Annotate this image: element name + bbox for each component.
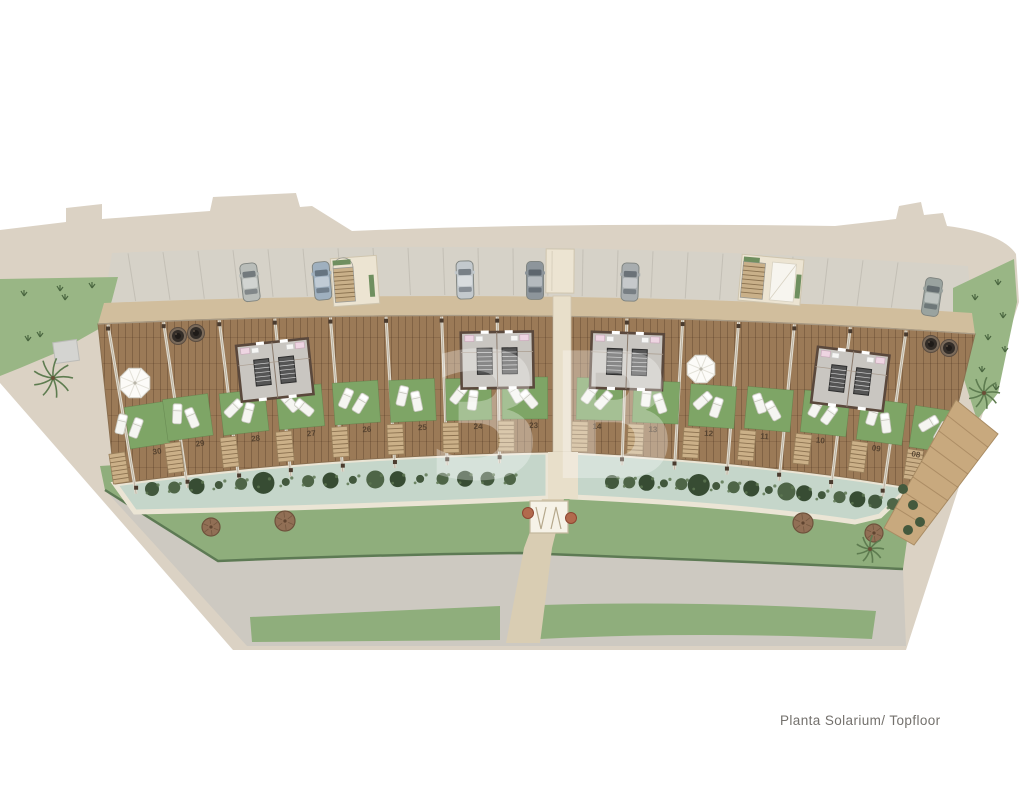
bush-icon [908, 500, 918, 510]
hedge-icon [818, 491, 826, 499]
stairs-icon [848, 441, 868, 473]
stairs-icon [737, 430, 756, 461]
hedge-leaf [335, 475, 338, 478]
fence-post [106, 327, 110, 331]
unit-number-label: 28 [251, 433, 261, 443]
hedge-icon [849, 491, 865, 507]
hedge-leaf [357, 474, 360, 477]
hedge-leaf [313, 476, 316, 479]
hedge-leaf [369, 482, 372, 485]
unit-number-label: 29 [195, 438, 206, 448]
hedge-leaf [710, 489, 713, 492]
hedge-icon [323, 473, 339, 489]
hedge-leaf [212, 488, 215, 491]
watermark-text: 3B [425, 317, 680, 520]
hedge-leaf [880, 496, 883, 499]
hedge-leaf [756, 483, 759, 486]
hedge-leaf [235, 486, 238, 489]
hedge-leaf [815, 498, 818, 501]
car-icon [454, 261, 475, 300]
hedge-icon [743, 481, 759, 497]
fence-post [328, 320, 332, 324]
hedge-leaf [844, 492, 847, 495]
hedge-leaf [190, 489, 193, 492]
plan-svg: 302928272625242314131211100908 3B [0, 0, 1024, 800]
hedge-leaf [738, 482, 741, 485]
hedge-leaf [391, 482, 394, 485]
hedge-leaf [780, 494, 783, 497]
stairs-icon [682, 427, 700, 458]
hedge-leaf [809, 488, 812, 491]
hedge-leaf [773, 484, 776, 487]
umbrella-icon [120, 368, 150, 398]
site-plan-page: 302928272625242314131211100908 3B Planta… [0, 0, 1024, 800]
fence-post [162, 324, 166, 328]
tree-icon [275, 511, 295, 531]
jacuzzi-icon [188, 325, 205, 342]
unit-number-label: 27 [306, 429, 316, 439]
stairs-icon [331, 426, 349, 457]
hedge-leaf [290, 476, 293, 479]
gravel-pad [53, 339, 80, 363]
hedge-leaf [745, 491, 748, 494]
hedge-leaf [721, 480, 724, 483]
unit-number-label: 10 [815, 436, 825, 446]
fence-post [792, 326, 796, 330]
plan-caption: Planta Solarium/ Topfloor [780, 713, 941, 728]
fence-post [777, 473, 781, 477]
jacuzzi-icon [923, 336, 940, 353]
stairs-icon [387, 424, 404, 455]
hedge-leaf [146, 492, 149, 495]
jacuzzi-icon [170, 328, 187, 345]
hedge-leaf [302, 484, 305, 487]
tree-icon [865, 524, 883, 542]
fence-post [393, 460, 397, 464]
bush-icon [898, 484, 908, 494]
hedge-leaf [414, 481, 417, 484]
fence-post [829, 480, 833, 484]
unit-number-label: 26 [362, 425, 372, 435]
hedge-icon [796, 485, 812, 501]
hedge-leaf [402, 474, 405, 477]
stairs-icon [793, 433, 812, 465]
unit-number-label: 11 [760, 432, 770, 442]
stairs-icon [164, 442, 184, 474]
hedge-leaf [223, 479, 226, 482]
hedge-leaf [179, 482, 182, 485]
hedge-leaf [346, 483, 349, 486]
fence-post [134, 486, 138, 490]
hedge-leaf [156, 483, 159, 486]
hedge-icon [688, 474, 710, 496]
hedge-icon [215, 481, 223, 489]
fence-post [341, 464, 345, 468]
hedge-leaf [257, 485, 260, 488]
fence-post [186, 480, 190, 484]
hedge-icon [416, 475, 424, 483]
fence-post [273, 321, 277, 325]
fence-post [681, 322, 685, 326]
car-icon [619, 263, 640, 302]
hedge-icon [252, 472, 274, 494]
fence-post [237, 473, 241, 477]
hedge-leaf [246, 478, 249, 481]
hedge-leaf [887, 507, 890, 510]
car-icon [525, 261, 545, 299]
hedge-leaf [324, 483, 327, 486]
hedge-leaf [798, 496, 801, 499]
hedge-icon [777, 483, 795, 501]
hedge-leaf [762, 493, 765, 496]
hedge-leaf [692, 488, 695, 491]
fence-post [384, 319, 388, 323]
hedge-leaf [279, 485, 282, 488]
stairs-icon [276, 431, 295, 462]
hedge-icon [349, 476, 357, 484]
hedge-icon [189, 478, 205, 494]
hedge-leaf [869, 504, 872, 507]
bush-icon [915, 517, 925, 527]
fence-post [904, 332, 908, 336]
bottom-green-strip-right [540, 603, 876, 639]
hedge-leaf [380, 474, 383, 477]
hedge-leaf [826, 490, 829, 493]
hedge-icon [366, 470, 384, 488]
hedge-leaf [201, 481, 204, 484]
fence-post [737, 324, 741, 328]
stairwell-structure [738, 254, 804, 305]
fence-post [725, 467, 729, 471]
hedge-leaf [791, 486, 794, 489]
sun-lounger-icon [172, 404, 182, 424]
umbrella-icon [687, 355, 715, 383]
hedge-icon [390, 471, 406, 487]
fence-post [848, 329, 852, 333]
hedge-leaf [703, 479, 706, 482]
fence-post [217, 322, 221, 326]
stairs-icon [220, 436, 239, 468]
fence-post [289, 468, 293, 472]
hedge-icon [765, 486, 773, 494]
stairwell-structure [546, 249, 574, 293]
hedge-leaf [168, 490, 171, 493]
tree-icon [202, 518, 220, 536]
jacuzzi-icon [941, 340, 958, 357]
hedge-icon [282, 478, 290, 486]
fence-post [881, 489, 885, 493]
penthouse-structure [236, 338, 313, 401]
unit-number-label: 12 [704, 429, 714, 439]
unit-number-label: 09 [871, 443, 882, 453]
tree-icon [793, 513, 813, 533]
stairwell-structure [330, 255, 379, 306]
hedge-leaf [727, 490, 730, 493]
penthouse-structure [811, 347, 889, 411]
hedge-leaf [833, 500, 836, 503]
unit-lawn [124, 401, 170, 449]
watermark: 3B [425, 317, 680, 520]
bush-icon [903, 525, 913, 535]
hedge-leaf [268, 477, 271, 480]
hedge-leaf [862, 494, 865, 497]
hedge-icon [712, 482, 720, 490]
hedge-leaf [851, 502, 854, 505]
